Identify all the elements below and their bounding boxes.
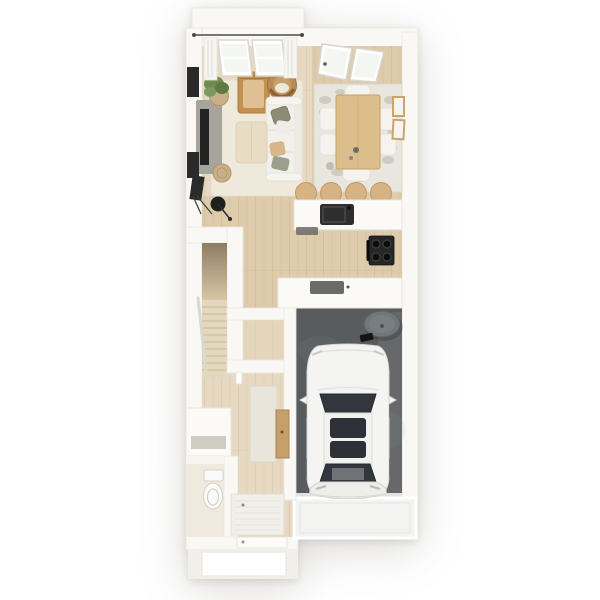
dining-chair	[320, 108, 337, 130]
open-shelf-slot	[191, 436, 226, 449]
runner-rug	[250, 386, 277, 462]
closet-bottom-wall	[227, 360, 292, 373]
mat-fleck	[242, 504, 245, 507]
plant-leaves	[215, 82, 229, 94]
front-door-handle	[242, 541, 245, 544]
burner	[372, 253, 380, 261]
hall-console-table	[276, 410, 289, 458]
closet-interior	[243, 320, 284, 360]
table-decor	[353, 147, 359, 153]
wall-frame-wood	[392, 120, 404, 140]
sofa-armrest	[266, 173, 302, 181]
driveway-apron	[294, 498, 416, 538]
range-handle	[367, 240, 370, 261]
wall-art-frame	[187, 152, 199, 178]
wood-armchair	[238, 72, 269, 113]
cooktop-knob	[347, 286, 350, 289]
white-car	[300, 344, 396, 499]
trunk-lid	[310, 482, 387, 497]
wall-frame-wood	[393, 97, 404, 116]
sofa	[266, 97, 302, 181]
counter-tray	[296, 227, 318, 235]
curtain-left	[204, 38, 217, 80]
throw-pillow-peach	[269, 141, 286, 157]
water-heater-cap	[380, 324, 384, 328]
stair-side-wall	[227, 227, 243, 373]
townhouse-unit	[186, 8, 418, 579]
curtain-rod-finial	[192, 33, 196, 37]
front-door	[237, 537, 287, 548]
floor-plan-canvas	[0, 0, 600, 600]
burner	[383, 240, 391, 248]
floor-plan-render	[0, 0, 600, 600]
dining-chair	[320, 134, 337, 155]
jute-pouf	[213, 164, 231, 182]
stair-void	[202, 243, 227, 300]
curtain-rod-finial	[300, 33, 304, 37]
cooktop	[310, 281, 344, 294]
sofa-backrest	[294, 99, 302, 179]
sunroof-panel	[330, 418, 366, 438]
rear-window-shade	[332, 468, 364, 480]
door-post	[236, 372, 242, 384]
plant-leaves	[204, 87, 216, 97]
table-decor	[349, 156, 353, 160]
toilet-tank	[204, 470, 223, 481]
burner	[383, 253, 391, 261]
garage-partition-wall	[284, 308, 296, 500]
console-knob	[281, 431, 284, 434]
burner	[372, 240, 380, 248]
staircase	[198, 298, 227, 378]
faucet	[347, 206, 351, 210]
door-handle	[323, 62, 327, 66]
floor-lamp-base	[228, 217, 232, 221]
entry-mat	[231, 494, 284, 535]
shelf-divider	[186, 456, 224, 464]
toilet	[204, 470, 224, 509]
porch-step	[202, 552, 286, 576]
curtain-right	[284, 38, 297, 78]
wall-art-frame	[187, 67, 199, 97]
sofa-armrest	[266, 97, 302, 105]
windshield	[320, 394, 376, 414]
range-cooker	[367, 236, 395, 265]
throw-pillow-white	[275, 120, 293, 135]
rattan-chair-cushion	[275, 83, 289, 93]
sunroof-panel	[330, 441, 366, 458]
armchair-cushion	[243, 80, 264, 108]
tv	[200, 109, 209, 165]
